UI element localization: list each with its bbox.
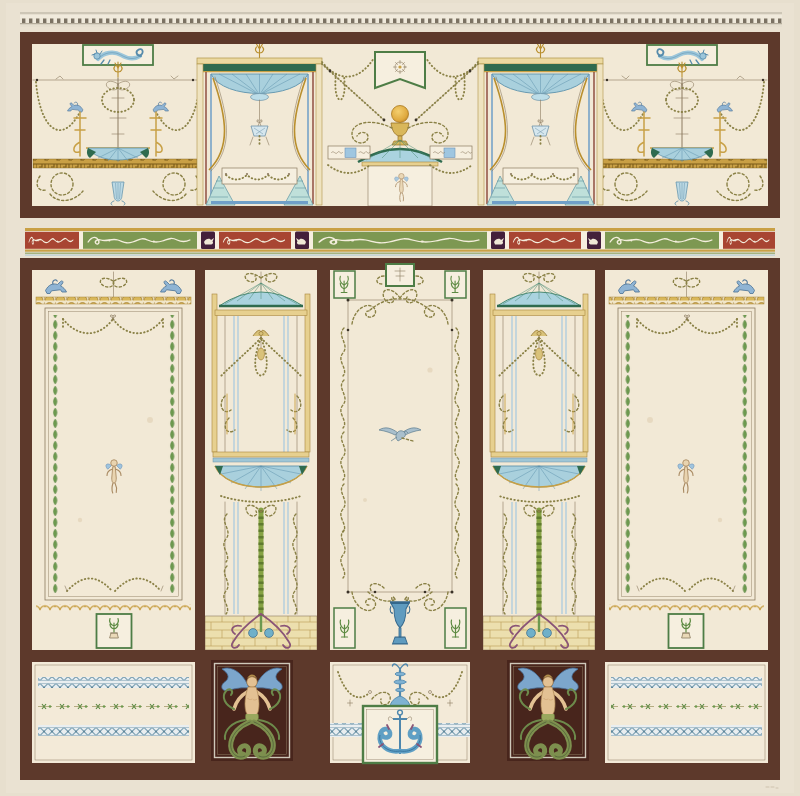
greek-key-band (603, 159, 767, 168)
dentil-course (20, 19, 782, 24)
divider (595, 270, 605, 650)
upper-frieze (20, 32, 780, 218)
banner-rosette (394, 61, 407, 74)
centre-dado-panel (330, 662, 470, 763)
lattice-band (330, 723, 363, 737)
lattice-band (437, 723, 470, 737)
divider (195, 270, 205, 650)
dado-register (20, 650, 780, 788)
main-field (32, 270, 768, 650)
artwork-plate (0, 0, 800, 796)
left-dado-panel (32, 662, 195, 763)
divider (470, 270, 483, 650)
greek-key-band (33, 159, 197, 168)
frieze-frame-bottom (20, 206, 780, 218)
golden-orb (392, 106, 409, 123)
frieze-frame-top (20, 32, 780, 44)
cornice-molding (20, 12, 782, 27)
wall-design-drawing (0, 0, 800, 796)
scrollwork-band (25, 228, 775, 256)
right-dado-panel (605, 662, 768, 763)
main-frame-left (20, 258, 32, 650)
main-frame-right (768, 258, 780, 650)
right-siren-panel (507, 660, 589, 761)
main-panel-register (20, 258, 780, 650)
divider (317, 270, 330, 650)
frieze-frame-left (20, 32, 32, 218)
left-siren-panel (211, 660, 293, 761)
frieze-frame-right (768, 32, 780, 218)
